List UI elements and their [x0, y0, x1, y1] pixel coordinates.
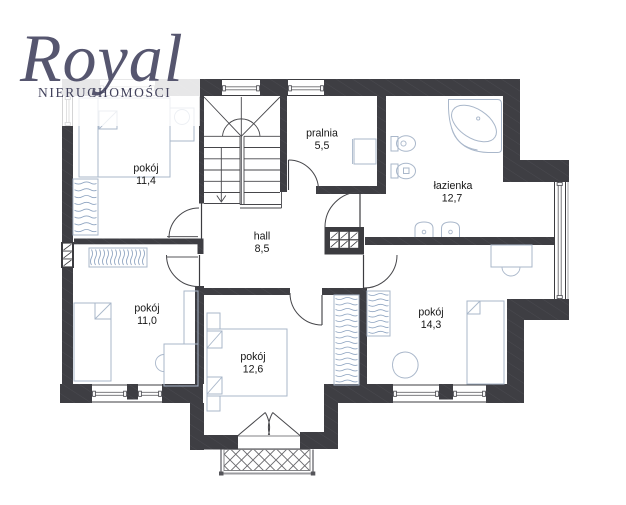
- svg-text:NIERUCHOMOŚCI: NIERUCHOMOŚCI: [38, 85, 171, 100]
- svg-text:pokój: pokój: [134, 303, 159, 315]
- svg-text:5,5: 5,5: [315, 140, 330, 152]
- svg-text:pokój: pokój: [133, 163, 158, 175]
- svg-text:12,6: 12,6: [243, 364, 264, 376]
- svg-text:pokój: pokój: [240, 351, 265, 363]
- svg-text:11,0: 11,0: [137, 315, 157, 327]
- svg-text:14,3: 14,3: [421, 319, 442, 331]
- svg-text:pralnia: pralnia: [306, 128, 338, 140]
- svg-text:11,4: 11,4: [136, 175, 156, 187]
- svg-text:pokój: pokój: [418, 307, 443, 319]
- svg-text:8,5: 8,5: [255, 243, 270, 255]
- svg-text:12,7: 12,7: [442, 193, 463, 205]
- svg-text:hall: hall: [254, 231, 271, 243]
- svg-text:łazienka: łazienka: [434, 180, 473, 192]
